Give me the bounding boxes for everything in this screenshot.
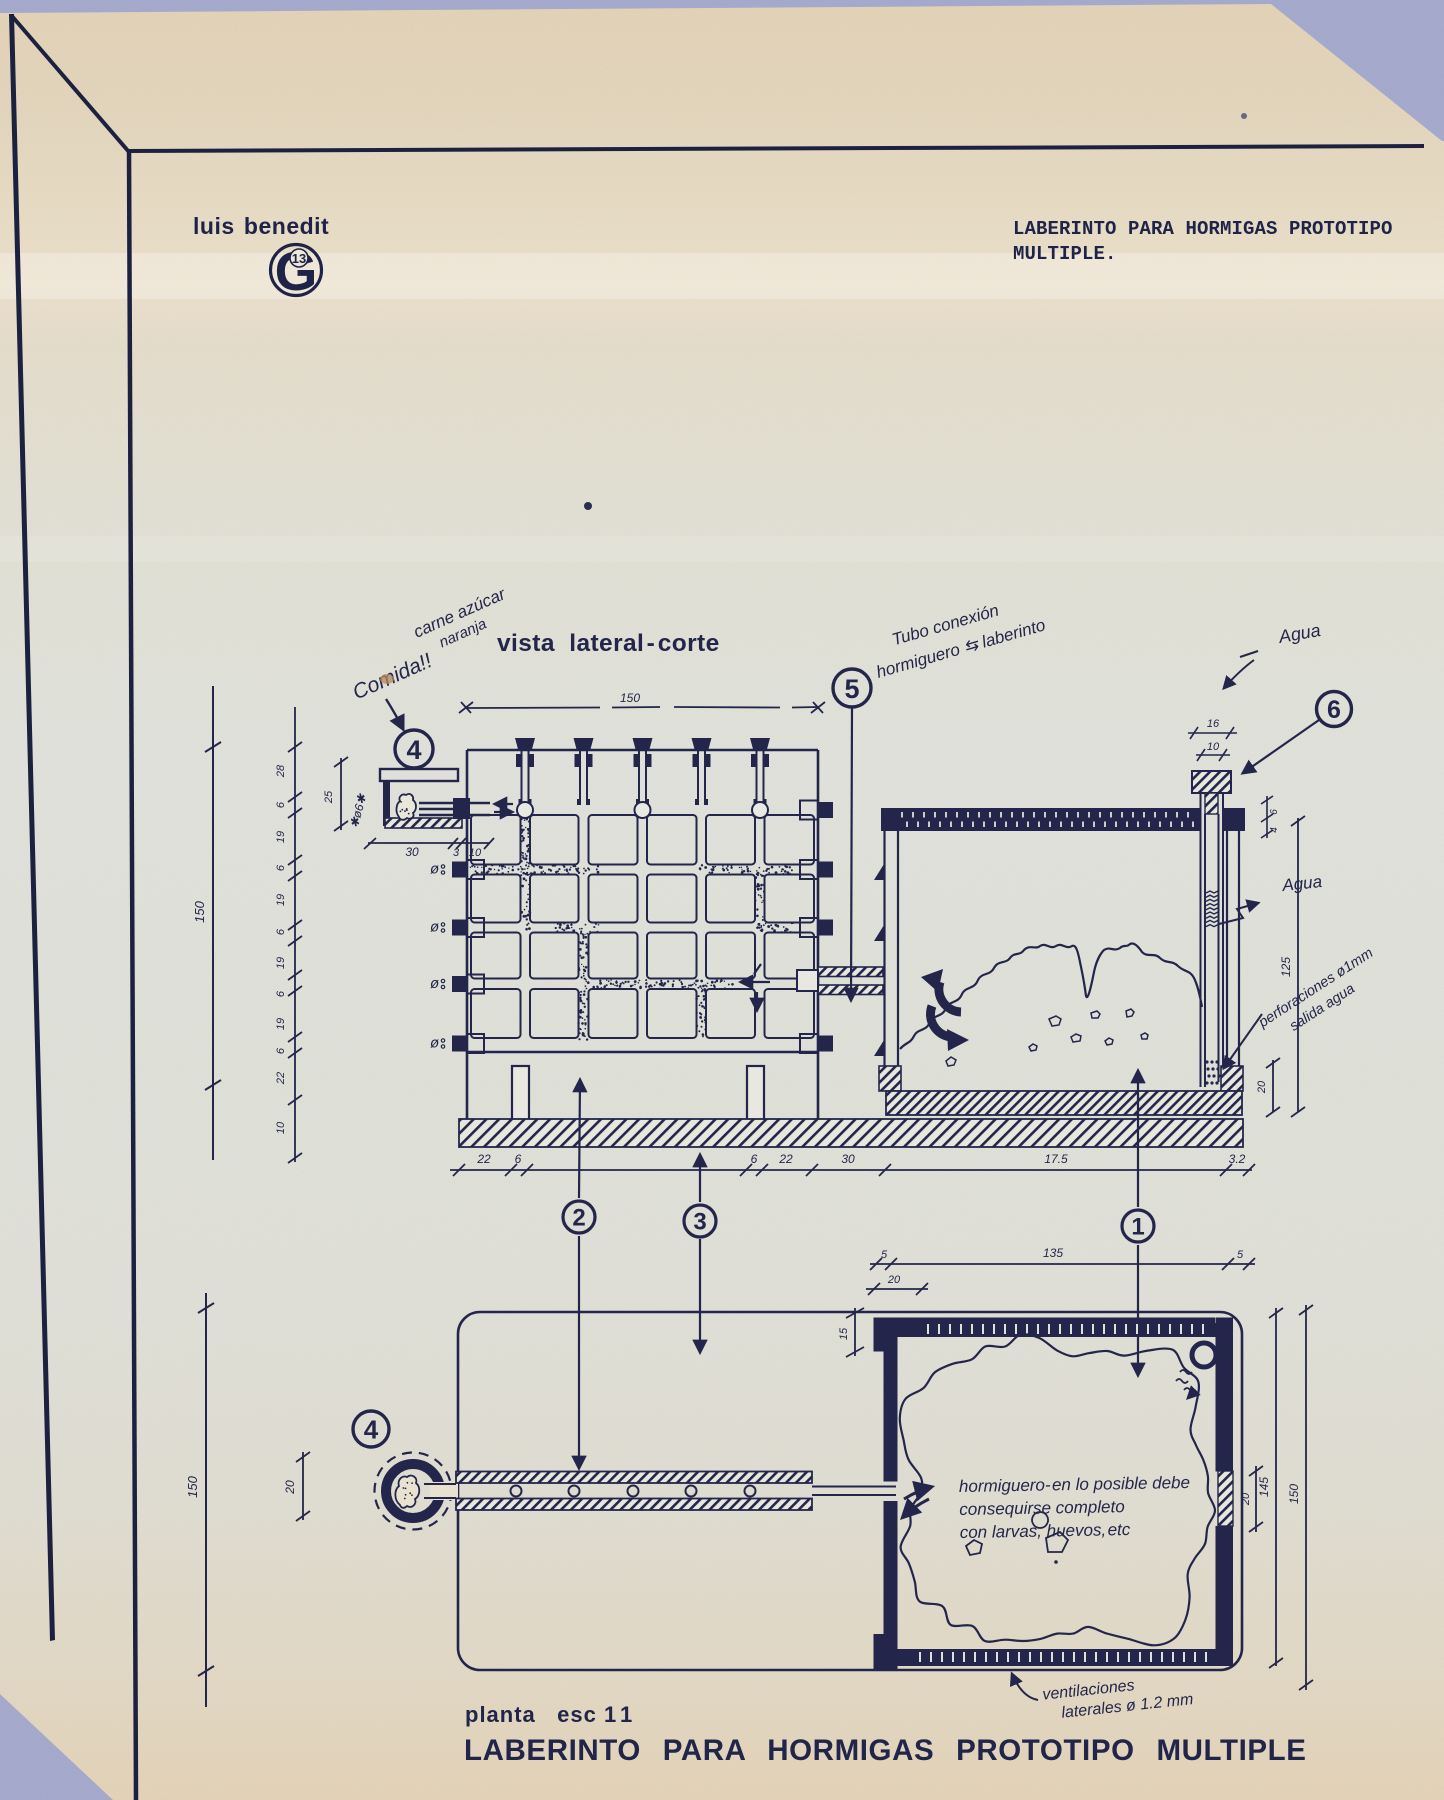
svg-text:5: 5 [881, 1249, 888, 1261]
svg-text:luis benedit: luis benedit [193, 213, 329, 239]
svg-text:6: 6 [275, 928, 287, 935]
svg-text:16: 16 [1207, 718, 1220, 730]
svg-text:10: 10 [469, 847, 482, 859]
svg-text:1: 1 [1131, 1214, 1144, 1241]
svg-text:30: 30 [841, 1152, 855, 1166]
svg-text:6: 6 [1327, 696, 1341, 724]
svg-text:13: 13 [292, 251, 306, 266]
svg-text:ø: ø [430, 919, 439, 936]
svg-text:150: 150 [192, 900, 207, 922]
svg-text:17.5: 17.5 [1044, 1152, 1068, 1166]
svg-text:19: 19 [275, 1018, 287, 1030]
svg-text:22: 22 [778, 1152, 793, 1166]
svg-text:10: 10 [1207, 741, 1220, 753]
svg-text:hormiguero- en lo posible debe: hormiguero- en lo posible debe [959, 1473, 1190, 1496]
svg-text:2: 2 [572, 1205, 585, 1232]
svg-text:19: 19 [275, 957, 287, 969]
svg-text:planta esc 1 1: planta esc 1 1 [465, 1702, 633, 1727]
svg-text:145: 145 [1257, 1477, 1271, 1497]
svg-text:ø: ø [430, 1035, 439, 1052]
svg-text:ø: ø [430, 861, 439, 878]
svg-text:135: 135 [1043, 1246, 1063, 1260]
svg-text:150: 150 [1287, 1484, 1301, 1504]
svg-text:20: 20 [1240, 1492, 1252, 1506]
svg-text:6: 6 [275, 1047, 287, 1054]
svg-text:6: 6 [275, 864, 287, 871]
svg-text:6: 6 [275, 990, 287, 997]
svg-text:LABERINTO PARA HORMIGAS PROTOT: LABERINTO PARA HORMIGAS PROTOTIPO [1013, 218, 1393, 240]
svg-text:3: 3 [453, 847, 460, 859]
svg-text:25: 25 [323, 790, 335, 804]
svg-text:150: 150 [185, 1475, 200, 1497]
svg-text:6: 6 [1269, 809, 1280, 815]
svg-text:19: 19 [275, 894, 287, 906]
svg-text:LABERINTO PARA HORMIGAS PROTOT: LABERINTO PARA HORMIGAS PROTOTIPO MULTIP… [464, 1734, 1307, 1767]
svg-text:MULTIPLE.: MULTIPLE. [1013, 243, 1117, 265]
svg-text:3: 3 [693, 1209, 706, 1236]
svg-text:20: 20 [283, 1480, 297, 1495]
svg-text:4: 4 [364, 1415, 379, 1445]
svg-text:22: 22 [476, 1152, 491, 1166]
svg-text:19: 19 [275, 831, 287, 843]
svg-text:con larvas, huevos, etc: con larvas, huevos, etc [960, 1520, 1131, 1542]
svg-text:6: 6 [751, 1152, 758, 1166]
svg-text:3.2: 3.2 [1229, 1152, 1246, 1166]
svg-text:20: 20 [887, 1274, 901, 1286]
svg-text:6: 6 [275, 801, 287, 808]
svg-text:15: 15 [838, 1327, 850, 1340]
svg-text:22: 22 [275, 1072, 287, 1085]
svg-text:20: 20 [1256, 1080, 1268, 1094]
svg-text:vista lateral - corte: vista lateral - corte [497, 630, 720, 657]
svg-text:30: 30 [405, 845, 419, 859]
svg-text:10: 10 [275, 1121, 287, 1134]
svg-text:4: 4 [406, 735, 421, 765]
svg-text:150: 150 [620, 691, 640, 705]
svg-text:consequirse completo: consequirse completo [959, 1497, 1125, 1519]
svg-text:28: 28 [275, 764, 287, 778]
svg-text:4: 4 [1269, 827, 1280, 833]
svg-text:6: 6 [515, 1152, 522, 1166]
svg-text:125: 125 [1279, 957, 1293, 977]
svg-text:ø: ø [430, 975, 439, 992]
svg-text:5: 5 [844, 674, 859, 704]
svg-text:5: 5 [1237, 1249, 1244, 1261]
